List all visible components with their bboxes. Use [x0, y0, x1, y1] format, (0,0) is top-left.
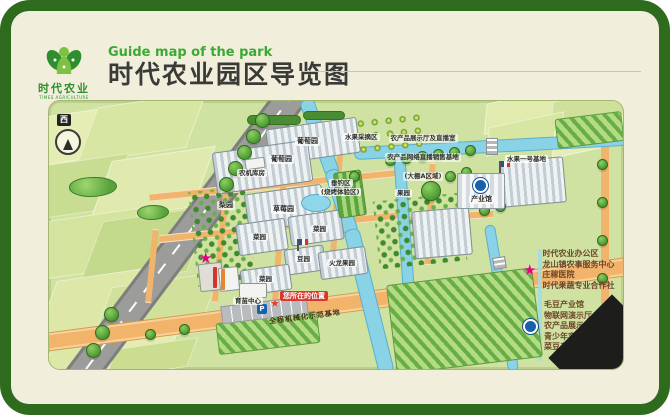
- tree-icon: [86, 343, 101, 358]
- greenhouse-block: [411, 207, 473, 260]
- compass-west-label: 西: [57, 114, 71, 126]
- map-label-grape-a: 葡萄园: [295, 137, 320, 146]
- star-marker-icon: ★: [199, 251, 212, 266]
- sign-card: 时代农业 TIMES AGRICULTURE Guide map of the …: [11, 11, 659, 404]
- map-label-industry-hall: 产业馆: [469, 195, 494, 204]
- logo: 时代农业 TIMES AGRICULTURE: [34, 43, 94, 100]
- flag-icon: [297, 239, 299, 251]
- tree-icon: [179, 324, 190, 335]
- park-map: P 西 ★ ★ 葡萄园 葡萄园 农机库房 水果采摘区 垂钓区 (烧烤体验区) 梨…: [48, 100, 624, 370]
- map-label-veg-c: 菜园: [257, 275, 274, 283]
- map-label-grape-b: 葡萄园: [269, 155, 294, 164]
- map-label-fishing: 垂钓区: [329, 179, 353, 187]
- logo-name: 时代农业: [34, 83, 94, 95]
- bridge: [486, 138, 498, 155]
- flag-icon: [499, 161, 501, 173]
- legend-circle-icon: [523, 319, 538, 334]
- logo-icon: [44, 43, 84, 79]
- map-label-fishing-sub: (烧烤体验区): [319, 188, 361, 196]
- tree-icon: [145, 329, 156, 340]
- legend-item: 时代农业办公区: [542, 249, 614, 260]
- bridge: [492, 256, 507, 270]
- hedge: [303, 111, 345, 120]
- legend-item: 龙山镇农事服务中心: [542, 260, 614, 271]
- tree-icon: [246, 129, 261, 144]
- page-title: 时代农业园区导览图: [108, 60, 351, 89]
- nursery-building: [239, 283, 267, 298]
- tree-icon: [597, 159, 608, 170]
- legend-item: 时代果蔬专业合作社: [542, 281, 614, 292]
- tree-icon: [255, 113, 270, 128]
- map-label-pear: 梨园: [217, 201, 235, 210]
- compass-icon: [55, 129, 81, 155]
- crop-rows: [386, 267, 543, 370]
- map-label-veg-a: 菜园: [311, 225, 328, 233]
- header-titles: Guide map of the park 时代农业园区导览图: [108, 45, 351, 89]
- tree-icon: [104, 307, 119, 322]
- fishing-pond: [301, 194, 331, 212]
- subtitle-en: Guide map of the park: [108, 45, 351, 60]
- map-label-machine-shed: 农机库房: [237, 169, 267, 177]
- map-label-dragonfruit: 火龙果园: [327, 259, 357, 267]
- map-label-bean: 豆园: [295, 255, 312, 263]
- tree-icon: [597, 197, 608, 208]
- map-label-orchard: 果园: [395, 189, 412, 197]
- map-label-strawberry: 草莓园: [271, 205, 296, 214]
- signboard-banner: [221, 269, 225, 290]
- park-guide-sign: 时代农业 TIMES AGRICULTURE Guide map of the …: [0, 0, 670, 415]
- display-hall-label: 农产品展示厅及直播室 农产品网络直播销售基地 (大棚A区域): [365, 125, 481, 182]
- map-label-veg-b: 菜园: [251, 233, 268, 241]
- parking-icon: P: [257, 304, 267, 314]
- map-label-nursery: 育苗中心: [233, 297, 263, 305]
- legend-star-icon: ★: [523, 263, 536, 278]
- tree-icon: [421, 181, 441, 201]
- map-label-fruit-base: 水果一号基地: [505, 155, 548, 163]
- legend-item: 庄稼医院: [542, 270, 614, 281]
- signboard-banner: [213, 267, 217, 288]
- header-divider: [303, 71, 641, 72]
- tree-icon: [219, 177, 234, 192]
- tree-icon: [597, 235, 608, 246]
- tree-icon: [95, 325, 110, 340]
- you-are-here-star-icon: ★: [270, 298, 280, 309]
- legend-star-group: ★ 时代农业办公区 龙山镇农事服务中心 庄稼医院 时代果蔬专业合作社: [523, 249, 621, 291]
- you-are-here-label: 您所在的位置: [280, 291, 328, 301]
